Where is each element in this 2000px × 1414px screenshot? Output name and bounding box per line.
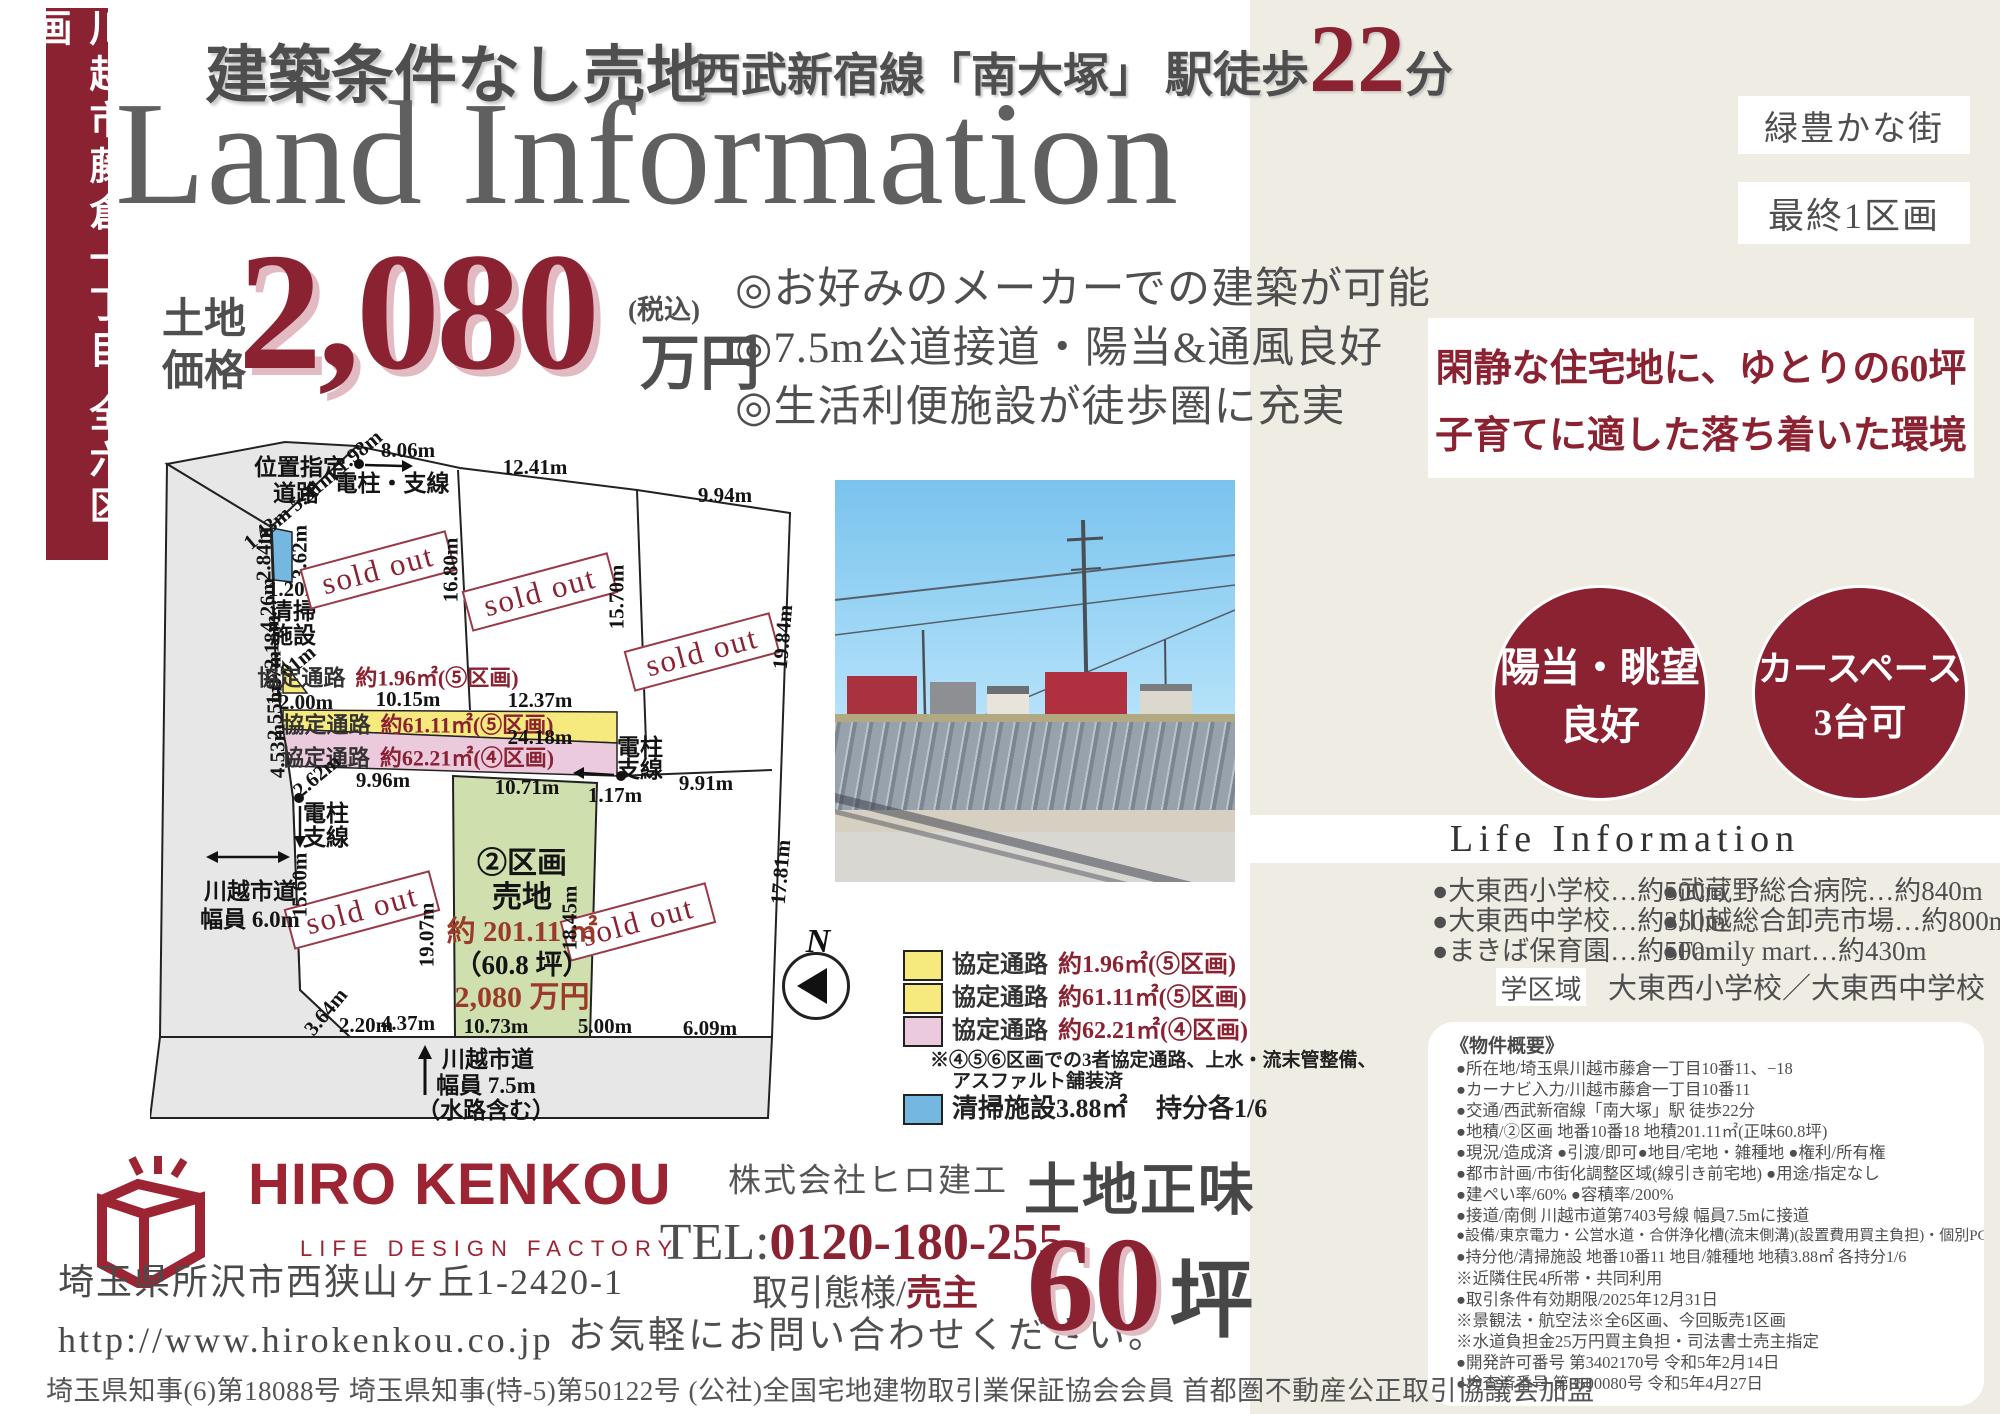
map-dim: 9.94m [698, 484, 752, 508]
passage-name: 協定通路 [283, 714, 371, 739]
badge-text: 最終1区画 [1768, 187, 1940, 239]
overview-line: ●カーナビ入力/川越市藤倉一丁目10番11 [1450, 1079, 1962, 1100]
map-label: 幅員 7.5m [436, 1073, 536, 1099]
company-tagline: LIFE DESIGN FACTORY [300, 1236, 679, 1261]
property-overview-box: 《物件概要》 ●所在地/埼玉県川越市藤倉一丁目10番11、−18 ●カーナビ入力… [1428, 1022, 1984, 1406]
overview-line: ※水道負担金25万円買主負担・司法書士売主指定 [1450, 1331, 1962, 1352]
price-amount: 2,080 [238, 228, 596, 396]
lot2-type: 売地 [492, 881, 552, 915]
facility-item: ●川越総合卸売市場…約800m [1662, 906, 2000, 937]
net-area-value: 60 [1026, 1218, 1161, 1353]
feature-bullet: ◎生活利便施設が徒歩圏に充実 [735, 383, 1346, 432]
photo-building [847, 676, 917, 716]
photo-building [1045, 672, 1127, 716]
overview-line: ●交通/西武新宿線「南大塚」駅 徒歩22分 [1450, 1100, 1962, 1121]
tel-label: TEL: [660, 1214, 770, 1272]
legend-row: 協定通路 約61.11㎡(⑤区画) [952, 985, 1247, 1013]
map-dim: 18.45m [558, 886, 583, 951]
deal-label: 取引態様/ [752, 1273, 906, 1313]
map-label: （水路含む） [417, 1098, 555, 1124]
catch-copy-box: 閑静な住宅地に、ゆとりの60坪 子育てに適した落ち着いた環境 [1428, 318, 1974, 478]
map-dim: 10.73m [464, 1015, 529, 1039]
map-dim: 9.96m [356, 769, 410, 793]
map-label: 電柱 [303, 801, 349, 827]
district-label-text: 学区域 [1501, 968, 1582, 1007]
price-tax: (税込) [628, 295, 700, 326]
map-label: 幅員 6.0m [200, 907, 300, 933]
legend-label: 協定通路 [952, 1018, 1048, 1046]
map-dim: 12.41m [503, 456, 568, 480]
site-photo [835, 480, 1235, 882]
feature-circle-car: カースペース 3台可 [1752, 585, 1968, 801]
walk-unit: 分 [1405, 48, 1453, 103]
legend-label: 協定通路 [952, 985, 1048, 1013]
compass-icon [782, 952, 850, 1020]
map-dim: 19.07m [415, 903, 440, 968]
overview-line: ●設備/東京電力・公営水道・合併浄化槽(流末側溝)(設置費用買主負担)・個別PG [1450, 1226, 1962, 1247]
feature-bullet: ◎お好みのメーカーでの建築が可能 [735, 265, 1431, 314]
circle-text: 3台可 [1814, 692, 1907, 746]
overview-line: ●現況/造成済 ●引渡/即可●地目/宅地・雑種地 ●権利/所有権 [1450, 1142, 1962, 1163]
lot2-number: ②区画 [477, 847, 567, 881]
company-url: http://www.hirokenkou.co.jp [58, 1320, 554, 1361]
legend-value: 約61.11㎡(⑤区画) [1058, 985, 1247, 1013]
legend-swatch-yellow [903, 950, 943, 981]
legend-note: ※④⑤⑥区画での3者協定通路、上水・流末管整備、 [930, 1050, 1377, 1072]
badge-last-lot: 最終1区画 [1738, 182, 1970, 244]
legend-swatch-yellow [903, 983, 943, 1014]
legend-row: 協定通路 約1.96㎡(⑤区画) [952, 952, 1236, 980]
overview-line: ※近隣住民4所帯・共同利用 [1450, 1268, 1962, 1289]
map-dim: 5.00m [578, 1015, 632, 1039]
circle-text: カースペース [1758, 641, 1962, 692]
catch-line: 子育てに適した落ち着いた環境 [1435, 404, 1967, 459]
map-label: 支線 [303, 825, 349, 851]
page-title: Land Information [115, 80, 1179, 228]
life-info-title: Life Information [1450, 817, 1800, 861]
net-area-unit: 坪 [1169, 1256, 1253, 1350]
photo-building [930, 682, 976, 715]
overview-line: ●地積/②区画 地番10番18 地積201.11㎡(正味60.8坪) [1450, 1121, 1962, 1142]
map-dim: 4.37m [381, 1012, 435, 1036]
legend-row: 清掃施設3.88㎡ 持分各1/6 [952, 1094, 1267, 1124]
legend-value: 約62.21㎡(④区画) [1058, 1018, 1248, 1046]
overview-line: ●接道/南側 川越市道第7403号線 幅員7.5mに接道 [1450, 1205, 1962, 1226]
catch-line: 閑静な住宅地に、ゆとりの60坪 [1436, 337, 1967, 392]
map-label: 川越市道 [204, 879, 296, 905]
walk-minutes: 22 [1309, 16, 1405, 102]
map-dim: 2.84m [252, 527, 277, 581]
company-address: 埼玉県所沢市西狭山ヶ丘1-2420-1 [58, 1262, 624, 1303]
map-dim: 9.91m [679, 772, 733, 796]
feature-circle-sun: 陽当・眺望 良好 [1492, 585, 1708, 801]
map-label: 電柱・支線 [335, 471, 450, 497]
net-area-value-row: 60 坪 [1026, 1218, 1253, 1353]
overview-line: ●持分他/清掃施設 地番10番11 地目/雑種地 地積3.88㎡ 各持分1/6 [1450, 1247, 1962, 1268]
passage-name: 協定通路 [257, 667, 345, 692]
legend-row: 協定通路 約62.21㎡(④区画) [952, 1018, 1248, 1046]
overview-line: ●建ぺい率/60% ●容積率/200% [1450, 1184, 1962, 1205]
badge-text: 緑豊かな街 [1764, 101, 1944, 150]
photo-road [835, 832, 1235, 882]
circle-text: 良好 [1560, 693, 1640, 751]
legend-swatch-pink [903, 1016, 943, 1047]
map-dim: 10.71m [495, 776, 560, 800]
walk-label: 駅徒歩 [1165, 48, 1309, 103]
overview-line: ●取引条件有効期限/2025年12月31日 [1450, 1289, 1962, 1310]
map-dim: 6.09m [683, 1017, 737, 1041]
company-name: HIRO KENKOU [248, 1152, 671, 1219]
school-district-label: 学区域 [1496, 968, 1586, 1006]
legend-note: アスファルト舗装済 [952, 1071, 1123, 1093]
badge-green-town: 緑豊かな街 [1738, 96, 1970, 154]
price-label-1: 土地 [162, 296, 246, 344]
facility-item: ●Family mart…約430m [1662, 936, 1927, 967]
price-label-2: 価格 [162, 348, 246, 396]
map-dim: 2.00m [279, 691, 333, 715]
location-banner: 川越市藤倉一丁目 全六区画 [46, 8, 108, 560]
legend-label: 協定通路 [952, 952, 1048, 980]
map-dim: 12.37m [508, 689, 573, 713]
feature-bullet: ◎7.5m公道接道・陽当&通風良好 [735, 324, 1383, 373]
map-dim: 1.17m [588, 784, 642, 808]
map-dim: 15.70m [605, 565, 630, 630]
photo-field [835, 722, 1235, 810]
circle-text: 陽当・眺望 [1500, 635, 1700, 693]
facility-item: ●武蔵野総合病院…約840m [1662, 876, 1983, 907]
overview-line: ●所在地/埼玉県川越市藤倉一丁目10番11、−18 [1450, 1058, 1962, 1079]
deal-value: 売主 [906, 1273, 978, 1313]
lot2-price: 2,080 万円 [455, 981, 590, 1015]
school-district-value: 大東西小学校／大東西中学校 [1608, 973, 1985, 1006]
license-line: 埼玉県知事(6)第18088号 埼玉県知事(特-5)第50122号 (公社)全国… [46, 1376, 1595, 1407]
map-dim: 10.15m [376, 688, 441, 712]
map-dim: 16.80m [439, 538, 464, 603]
map-label: 支線 [617, 757, 663, 783]
contact-corp: 株式会社ヒロ建工 [728, 1164, 1008, 1201]
lot2-tsubo: （60.8 坪） [455, 950, 590, 980]
overview-line: ●都市計画/市街化調整区域(線引き前宅地) ●用途/指定なし [1450, 1163, 1962, 1184]
legend-swatch-blue [903, 1094, 943, 1125]
legend-value: 約1.96㎡(⑤区画) [1058, 952, 1236, 980]
compass-needle [797, 968, 827, 1004]
overview-line: ※景観法・航空法※全6区画、今回販売1区画 [1450, 1310, 1962, 1331]
legend-label: 清掃施設3.88㎡ [952, 1094, 1128, 1123]
overview-title: 《物件概要》 [1450, 1036, 1962, 1058]
site-plan: 位置指定 道路 1.43m 5.31m 1.98m 電柱・支線 8.06m 12… [150, 440, 810, 1120]
overview-line: ●開発許可番号 第3402170号 令和5年2月14日 [1450, 1352, 1962, 1373]
life-info-band: Life Information [1250, 815, 2000, 863]
contact-tel: TEL: 0120-180-255 [660, 1214, 1064, 1272]
contact-deal: 取引態様/ 売主 [752, 1273, 978, 1313]
tel-number: 0120-180-255 [770, 1214, 1065, 1272]
map-label: 川越市道 [442, 1047, 534, 1073]
map-dim: 8.06m [381, 439, 435, 463]
legend-share: 持分各1/6 [1156, 1094, 1267, 1123]
pole-arrow [365, 465, 402, 466]
